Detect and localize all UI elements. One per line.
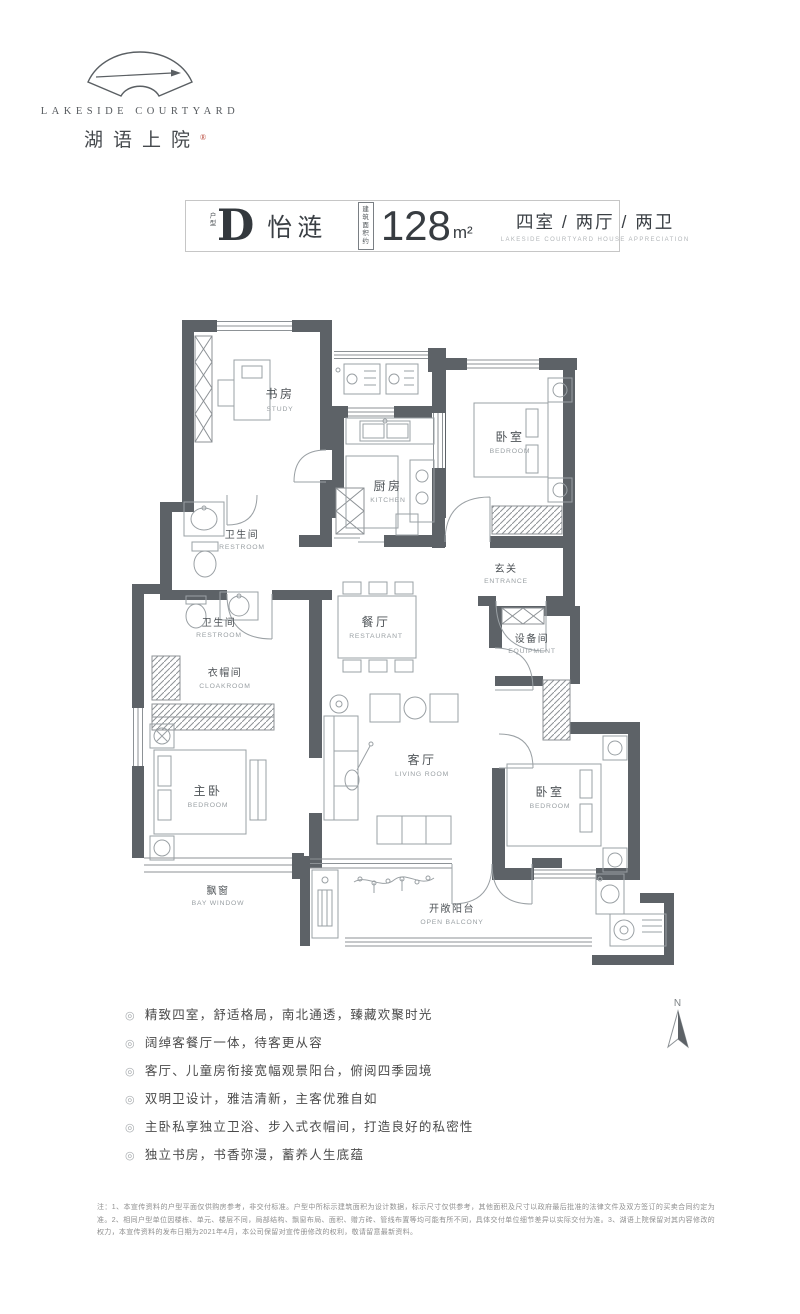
room-label-restroom-upper-zh: 卫生间 bbox=[225, 528, 260, 541]
unit-type-letter: D bbox=[217, 205, 254, 248]
brand-name-zh: 湖语上院® bbox=[40, 125, 240, 152]
unit-type-name: 怡涟 bbox=[267, 208, 327, 244]
feature-list: ◎精致四室，舒适格局，南北通透，臻藏欢聚时光 ◎阔绰客餐厅一体，待客更从容 ◎客… bbox=[125, 1002, 685, 1170]
room-label-cloakroom-zh: 衣帽间 bbox=[208, 666, 243, 679]
unit-layout-subtext: LAKESIDE COURTYARD HOUSE APPRECIATION bbox=[501, 237, 690, 243]
room-label-balcony-en: OPEN BALCONY bbox=[420, 919, 483, 926]
feature-item: ◎精致四室，舒适格局，南北通透，臻藏欢聚时光 bbox=[125, 1002, 685, 1030]
room-label-equipment-en: EQUIPMENT bbox=[508, 648, 556, 655]
unit-type-group: 户型 D 怡涟 bbox=[186, 205, 327, 248]
room-label-equipment-zh: 设备间 bbox=[515, 632, 550, 645]
room-label-entrance-en: ENTRANCE bbox=[484, 578, 528, 585]
unit-area-group: 建筑面积约 128 m² bbox=[358, 202, 472, 250]
unit-layout-group: 四室 / 两厅 / 两卫 LAKESIDE COURTYARD HOUSE AP… bbox=[501, 209, 690, 243]
room-label-cloakroom-en: CLOAKROOM bbox=[199, 683, 250, 690]
area-unit: m² bbox=[453, 223, 473, 243]
feature-item: ◎客厅、儿童房衔接宽幅观景阳台，俯阅四季园境 bbox=[125, 1058, 685, 1086]
disclaimer-text: 注：1、本宣传资料的户型平面仅供购房参考，非交付标准。户型中所标示建筑面积为设计… bbox=[97, 1202, 715, 1240]
unit-layout-text: 四室 / 两厅 / 两卫 bbox=[501, 209, 690, 234]
room-label-bay-window-en: BAY WINDOW bbox=[192, 900, 245, 907]
room-label-bay-window-zh: 飘窗 bbox=[207, 884, 230, 897]
area-value: 128 bbox=[381, 205, 451, 247]
unit-type-tag: 户型 bbox=[206, 212, 216, 227]
room-label-study-zh: 书房 bbox=[265, 386, 294, 401]
room-label-dining-zh: 餐厅 bbox=[361, 614, 390, 629]
room-label-bedroom-tr-en: BEDROOM bbox=[490, 448, 531, 455]
feature-item: ◎主卧私享独立卫浴、步入式衣帽间，打造良好的私密性 bbox=[125, 1114, 685, 1142]
room-label-restroom-lower-zh: 卫生间 bbox=[202, 616, 237, 629]
room-label-bedroom-br-zh: 卧室 bbox=[535, 784, 564, 799]
room-labels: 书房 STUDY 厨房 KITCHEN 卧室 BEDROOM 玄关 ENTRAN… bbox=[188, 386, 571, 926]
bullet-icon: ◎ bbox=[125, 1094, 136, 1106]
room-label-living-zh: 客厅 bbox=[407, 752, 436, 767]
bullet-icon: ◎ bbox=[125, 1122, 136, 1134]
room-label-study-en: STUDY bbox=[266, 406, 293, 413]
room-label-kitchen-zh: 厨房 bbox=[373, 478, 402, 493]
unit-header-plate: 户型 D 怡涟 建筑面积约 128 m² 四室 / 两厅 / 两卫 LAKESI… bbox=[185, 200, 620, 252]
feature-item: ◎双明卫设计，雅洁清新，主客优雅自如 bbox=[125, 1086, 685, 1114]
bullet-icon: ◎ bbox=[125, 1038, 136, 1050]
room-label-balcony-zh: 开敞阳台 bbox=[429, 902, 475, 915]
trademark-icon: ® bbox=[200, 133, 206, 142]
bullet-icon: ◎ bbox=[125, 1010, 136, 1022]
feature-item: ◎阔绰客餐厅一体，待客更从容 bbox=[125, 1030, 685, 1058]
fan-logo-icon bbox=[80, 32, 200, 104]
feature-item: ◎独立书房，书香弥漫，蓄养人生底蕴 bbox=[125, 1142, 685, 1170]
room-label-master-zh: 主卧 bbox=[193, 784, 222, 798]
room-label-restroom-lower-en: RESTROOM bbox=[196, 632, 242, 639]
room-label-kitchen-en: KITCHEN bbox=[370, 497, 405, 504]
floorplan-poster: LAKESIDE COURTYARD 湖语上院® 户型 D 怡涟 建筑面积约 1… bbox=[0, 0, 800, 1314]
area-label: 建筑面积约 bbox=[358, 202, 374, 250]
room-label-entrance-zh: 玄关 bbox=[495, 562, 518, 575]
brand-name-en: LAKESIDE COURTYARD bbox=[40, 106, 240, 117]
room-label-dining-en: RESTAURANT bbox=[349, 633, 403, 640]
room-label-living-en: LIVING ROOM bbox=[395, 771, 449, 778]
bullet-icon: ◎ bbox=[125, 1150, 136, 1162]
room-label-restroom-upper-en: RESTROOM bbox=[219, 544, 265, 551]
bullet-icon: ◎ bbox=[125, 1066, 136, 1078]
room-label-master-en: BEDROOM bbox=[188, 802, 229, 809]
brand-logo: LAKESIDE COURTYARD 湖语上院® bbox=[40, 32, 240, 152]
room-label-bedroom-tr-zh: 卧室 bbox=[495, 429, 524, 444]
floorplan-drawing: 书房 STUDY 厨房 KITCHEN 卧室 BEDROOM 玄关 ENTRAN… bbox=[122, 308, 704, 976]
room-label-bedroom-br-en: BEDROOM bbox=[530, 803, 571, 810]
